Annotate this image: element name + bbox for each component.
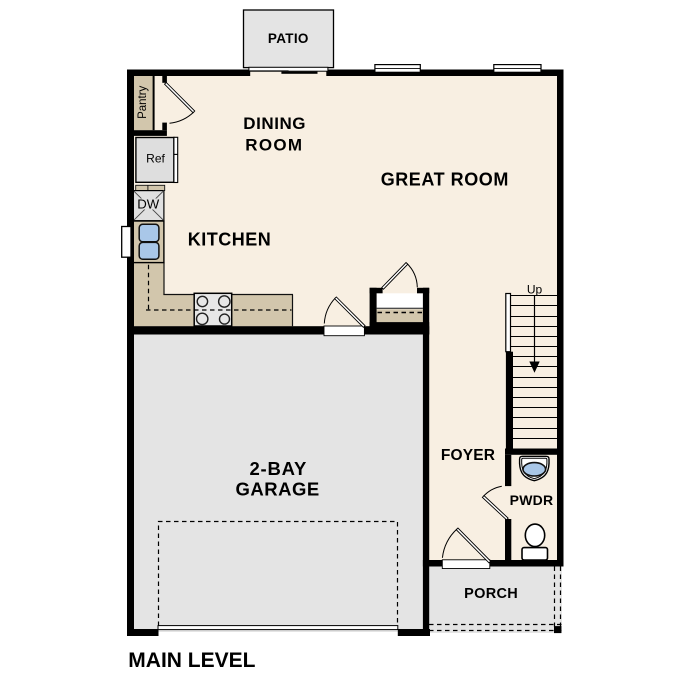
svg-text:MAIN LEVEL: MAIN LEVEL [128, 649, 255, 672]
svg-text:ROOM: ROOM [245, 135, 303, 154]
svg-text:DINING: DINING [243, 114, 306, 133]
svg-text:FOYER: FOYER [441, 447, 495, 464]
svg-text:2-BAY: 2-BAY [250, 458, 308, 479]
svg-text:KITCHEN: KITCHEN [188, 229, 272, 249]
svg-text:PWDR: PWDR [510, 492, 554, 508]
svg-text:PATIO: PATIO [268, 31, 309, 46]
svg-text:DW: DW [137, 197, 160, 212]
svg-text:GREAT ROOM: GREAT ROOM [381, 170, 509, 190]
svg-text:Ref: Ref [146, 152, 165, 166]
svg-text:Up: Up [527, 283, 543, 297]
svg-text:Pantry: Pantry [137, 85, 149, 118]
svg-text:PORCH: PORCH [464, 586, 518, 602]
svg-text:GARAGE: GARAGE [235, 478, 319, 499]
